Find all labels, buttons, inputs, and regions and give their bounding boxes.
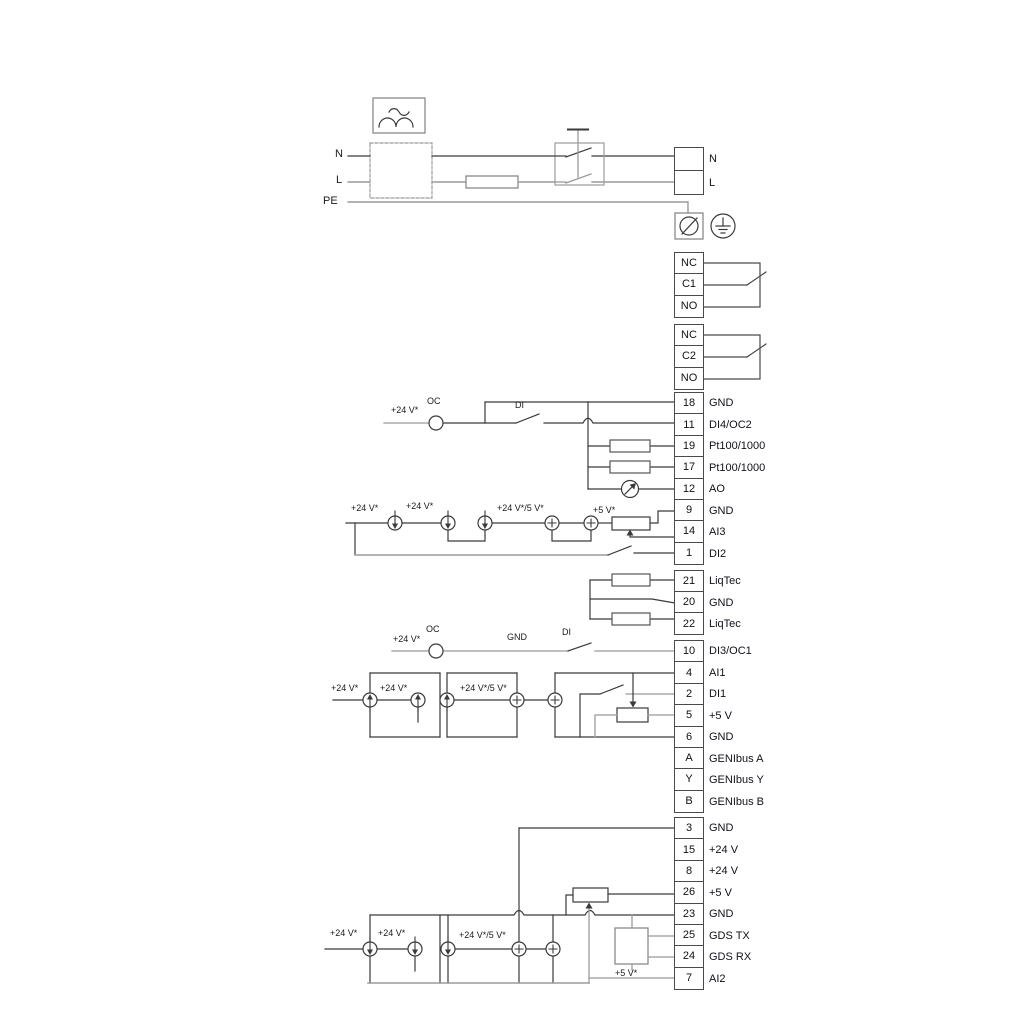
terminal-label: +5 V	[709, 709, 732, 723]
oc-circle-icon	[429, 644, 443, 658]
di1-switch-lever	[600, 685, 623, 694]
wire-label: +24 V*/5 V*	[459, 930, 506, 940]
wire-label: +24 V*	[380, 683, 407, 693]
terminal-cell: 5	[675, 705, 703, 726]
di4-switch-lever	[516, 414, 539, 423]
gds-sensor-box	[615, 928, 648, 964]
terminal-cell: 20	[675, 592, 703, 613]
wire-label: DI	[562, 627, 571, 637]
dashed-device-box	[370, 143, 432, 198]
wiring-diagram: N L NC C1 NO NC C2 NO 18 11 19 17 12 9 1…	[0, 0, 1024, 1024]
terminal-cell: C2	[675, 346, 703, 367]
terminal-cell: 23	[675, 904, 703, 925]
mains-n-label: N	[335, 148, 343, 160]
terminal-cell: 11	[675, 414, 703, 435]
terminal-cell: 19	[675, 436, 703, 457]
terminal-cell: NC	[675, 325, 703, 346]
io-terminal-strip-c: 10 4 2 5 6 A Y B	[674, 640, 704, 813]
wire-label: +24 V*	[391, 405, 418, 415]
relay-contact-wiring	[704, 263, 766, 379]
terminal-label: GENIbus A	[709, 752, 763, 766]
oc-circle-icon	[429, 416, 443, 430]
relay1-contact-lever	[747, 272, 766, 285]
terminal-cell: 8	[675, 861, 703, 882]
liqtec-resistor-icon	[612, 574, 650, 586]
terminal-cell: 25	[675, 925, 703, 946]
terminal-cell: 2	[675, 684, 703, 705]
mains-terminal-strip	[674, 147, 704, 195]
wire-label: +24 V*	[330, 928, 357, 938]
liqtec-sensor-wiring	[590, 574, 675, 625]
terminal-cell: NO	[675, 368, 703, 389]
terminal-cell: 22	[675, 613, 703, 634]
wire-label: +5 V*	[593, 505, 615, 515]
terminal-label: L	[709, 176, 715, 190]
wire-label: +24 V*	[406, 501, 433, 511]
terminal-cell: 21	[675, 571, 703, 592]
terminal-label: GND	[709, 504, 733, 518]
terminal-label: GENIbus Y	[709, 773, 764, 787]
terminal-label: GND	[709, 596, 733, 610]
terminal-cell: 14	[675, 521, 703, 542]
earth-ground-icon	[711, 214, 735, 238]
terminal-cell: 1	[675, 543, 703, 564]
terminal-label: +5 V	[709, 886, 732, 900]
terminal-label: AI3	[709, 525, 726, 539]
terminal-label: +24 V	[709, 843, 738, 857]
terminal-label: GND	[709, 730, 733, 744]
terminal-cell: 9	[675, 500, 703, 521]
pt100-resistor-icon	[610, 461, 650, 473]
terminal-label: N	[709, 152, 717, 166]
terminal-label: GND	[709, 396, 733, 410]
terminal-label: GND	[709, 821, 733, 835]
fuse-icon	[466, 176, 518, 188]
terminal-label: DI3/OC1	[709, 644, 752, 658]
relay2-contact-lever	[747, 344, 766, 357]
wire-label: OC	[426, 624, 440, 634]
terminal-cell: 4	[675, 662, 703, 683]
terminal-cell: C1	[675, 274, 703, 295]
terminal-cell: 17	[675, 457, 703, 478]
mains-pe-label: PE	[323, 195, 338, 207]
io-terminal-strip-d: 3 15 8 26 23 25 24 7	[674, 817, 704, 990]
pe-wire	[348, 202, 688, 213]
mains-l-label: L	[336, 174, 342, 186]
di3-switch-lever	[568, 643, 591, 651]
wire-label: +24 V*	[351, 503, 378, 513]
terminal-cell-n	[675, 148, 703, 171]
strip-a-wiring	[384, 402, 675, 498]
terminal-cell: 15	[675, 839, 703, 860]
wire-label: DI	[515, 400, 524, 410]
potentiometer-icon	[573, 888, 608, 902]
potentiometer-icon	[612, 517, 650, 530]
wire-label: +24 V*	[393, 634, 420, 644]
terminal-cell: 10	[675, 641, 703, 662]
terminal-label: LiqTec	[709, 617, 741, 631]
terminal-cell: B	[675, 791, 703, 812]
wire-label: +24 V*/5 V*	[460, 683, 507, 693]
pt100-resistor-icon	[610, 440, 650, 452]
wire-label: +24 V*	[378, 928, 405, 938]
terminal-cell: 26	[675, 882, 703, 903]
wire-label: +24 V*/5 V*	[497, 503, 544, 513]
terminal-cell: 6	[675, 727, 703, 748]
terminal-label: GDS TX	[709, 929, 750, 943]
terminal-label: LiqTec	[709, 574, 741, 588]
terminal-cell: NO	[675, 296, 703, 317]
liqtec-terminal-strip: 21 20 22	[674, 570, 704, 635]
wire-label: OC	[427, 396, 441, 406]
terminal-label: Pt100/1000	[709, 439, 765, 453]
terminal-label: GND	[709, 907, 733, 921]
relay2-terminal-strip: NC C2 NO	[674, 324, 704, 390]
ai2-gds-external-circuit	[325, 828, 675, 983]
terminal-label: AI2	[709, 972, 726, 986]
relay1-terminal-strip: NC C1 NO	[674, 252, 704, 318]
terminal-cell: 18	[675, 393, 703, 414]
terminal-label: GENIbus B	[709, 795, 764, 809]
terminal-label: GDS RX	[709, 950, 751, 964]
terminal-cell: Y	[675, 769, 703, 790]
terminal-cell: 12	[675, 479, 703, 500]
terminal-label: AI1	[709, 666, 726, 680]
io-terminal-strip-a: 18 11 19 17 12 9 14 1	[674, 392, 704, 565]
di2-switch-lever	[608, 546, 631, 555]
terminal-label: DI4/OC2	[709, 418, 752, 432]
terminal-label: AO	[709, 482, 725, 496]
sine-icon	[389, 109, 409, 116]
pulse-humps-icon	[379, 118, 413, 127]
terminal-cell: A	[675, 748, 703, 769]
terminal-label: DI1	[709, 687, 726, 701]
rcd-symbol-box	[373, 98, 425, 133]
wire-label: +24 V*	[331, 683, 358, 693]
terminal-cell: 7	[675, 968, 703, 989]
terminal-label: DI2	[709, 547, 726, 561]
wire-label: GND	[507, 632, 527, 642]
wiper-arrow-icon	[586, 903, 593, 909]
terminal-cell: 24	[675, 946, 703, 967]
terminal-cell: 3	[675, 818, 703, 839]
liqtec-resistor-icon	[612, 613, 650, 625]
terminal-cell-l	[675, 171, 703, 194]
wire-label: +5 V*	[615, 968, 637, 978]
terminal-label: Pt100/1000	[709, 461, 765, 475]
potentiometer-icon	[617, 708, 648, 722]
wiper-arrow-icon	[630, 702, 637, 708]
terminal-cell: NC	[675, 253, 703, 274]
terminal-label: +24 V	[709, 864, 738, 878]
